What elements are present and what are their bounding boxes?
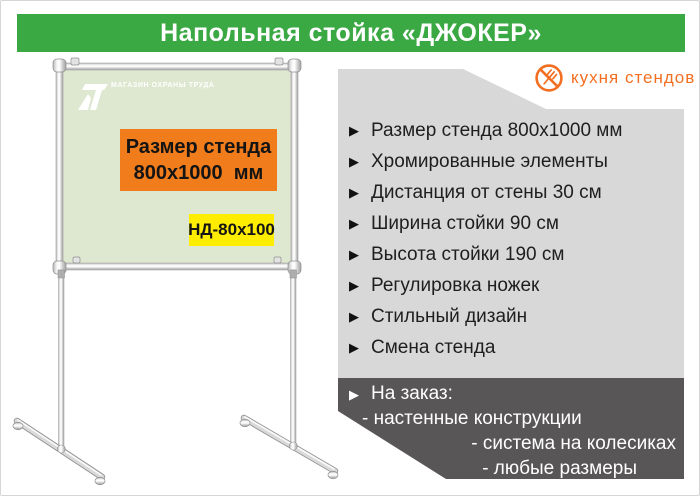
triangle-bullet-icon: ▶ [349, 248, 371, 261]
triangle-bullet-icon: ▶ [349, 217, 371, 230]
custom-order-item: - любые размеры [338, 458, 684, 480]
triangle-bullet-icon: ▶ [349, 279, 371, 292]
custom-order-item: - настенные конструкции [338, 408, 684, 430]
page-title: Напольная стойка «ДЖОКЕР» [160, 19, 542, 48]
mot-logo-glyph [77, 79, 109, 111]
custom-order-box: ▶ На заказ: - настенные конструкции - си… [338, 378, 684, 479]
board-model-code: НД-80х100 [188, 220, 275, 240]
triangle-bullet-icon: ▶ [349, 388, 371, 401]
crossed-fork-icon [534, 63, 564, 93]
feature-item: ▶ Размер стенда 800х1000 мм [338, 115, 684, 146]
brand-logo: кухня стендов [534, 63, 695, 93]
stand-illustration [1, 56, 346, 496]
page-title-bar: Напольная стойка «ДЖОКЕР» [17, 14, 685, 52]
product-banner: Напольная стойка «ДЖОКЕР» [0, 0, 700, 496]
board-size-plate: Размер стенда 800х1000 мм [120, 129, 277, 191]
feature-item: ▶ Дистанция от стены 30 см [338, 177, 684, 208]
feature-item: ▶ Смена стенда [338, 332, 684, 363]
board-size-line2: 800х1000 мм [134, 160, 264, 186]
custom-order-item: - система на колесиках [338, 433, 684, 455]
custom-order-title: ▶ На заказ: [338, 383, 684, 405]
feature-item: ▶ Ширина стойки 90 см [338, 208, 684, 239]
feature-item: ▶ Высота стойки 190 см [338, 239, 684, 270]
triangle-bullet-icon: ▶ [349, 186, 371, 199]
features-list: ▶ Размер стенда 800х1000 мм ▶ Хромирован… [338, 115, 684, 363]
triangle-bullet-icon: ▶ [349, 155, 371, 168]
feature-item: ▶ Хромированные элементы [338, 146, 684, 177]
stand-legs [58, 270, 297, 450]
board-size-line1: Размер стенда [126, 134, 272, 160]
triangle-bullet-icon: ▶ [349, 124, 371, 137]
triangle-bullet-icon: ▶ [349, 310, 371, 323]
feature-item: ▶ Регулировка ножек [338, 270, 684, 301]
board-model-plate: НД-80х100 [189, 214, 274, 246]
triangle-bullet-icon: ▶ [349, 341, 371, 354]
mot-logo-text: МАГАЗИН ОХРАНЫ ТРУДА [111, 82, 211, 89]
feature-item: ▶ Стильный дизайн [338, 301, 684, 332]
brand-name: кухня стендов [571, 68, 695, 88]
